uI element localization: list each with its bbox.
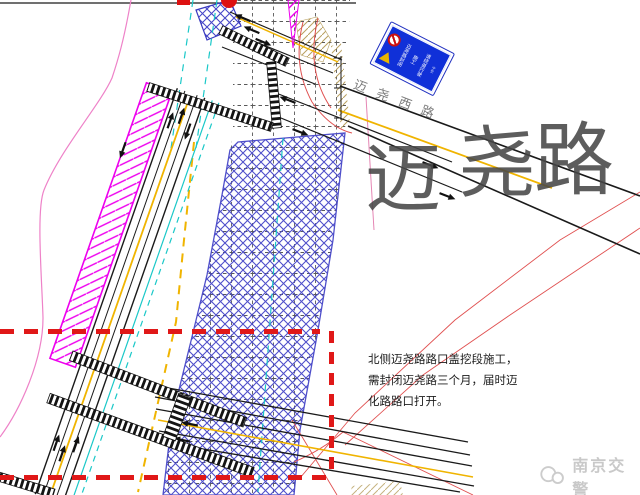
site-plan-canvas: 迈 尧 路 迈尧西路 迈尧路封闭 施工 请绕道行驶 宁交 北侧迈尧路路口盖挖段施… [0,0,640,495]
annotation-line-2: 需封闭迈尧路三个月，届时迈 [368,371,546,392]
sign-line-micro: 宁交 [429,65,438,74]
watermark-char-yao: 尧 [458,125,536,203]
footer-brand: 南京交警 [538,452,640,495]
median-barrier-magenta [50,83,172,368]
closure-boundary-right [329,331,334,478]
wechat-icon [538,464,566,488]
annotation-line-1: 北侧迈尧路路口盖挖段施工， [368,350,546,371]
watermark-char-mai: 迈 [365,141,441,217]
watermark-char-lu: 路 [534,121,614,201]
bottom-hatch-bits [350,481,403,495]
brand-text: 南京交警 [572,452,640,495]
closure-annotation: 北侧迈尧路路口盖挖段施工， 需封闭迈尧路三个月，届时迈 化路路口打开。 [368,350,546,413]
construction-hatch-zone [163,133,345,495]
annotation-line-3: 化路路口打开。 [368,392,546,413]
red-blob-1 [177,0,190,5]
site-plan-linework [0,0,640,495]
leader-lines-pink [292,192,640,495]
closure-boundary-top [0,329,320,334]
sign-line-2: 施工 [409,54,419,66]
closure-boundary-bottom [0,475,336,480]
